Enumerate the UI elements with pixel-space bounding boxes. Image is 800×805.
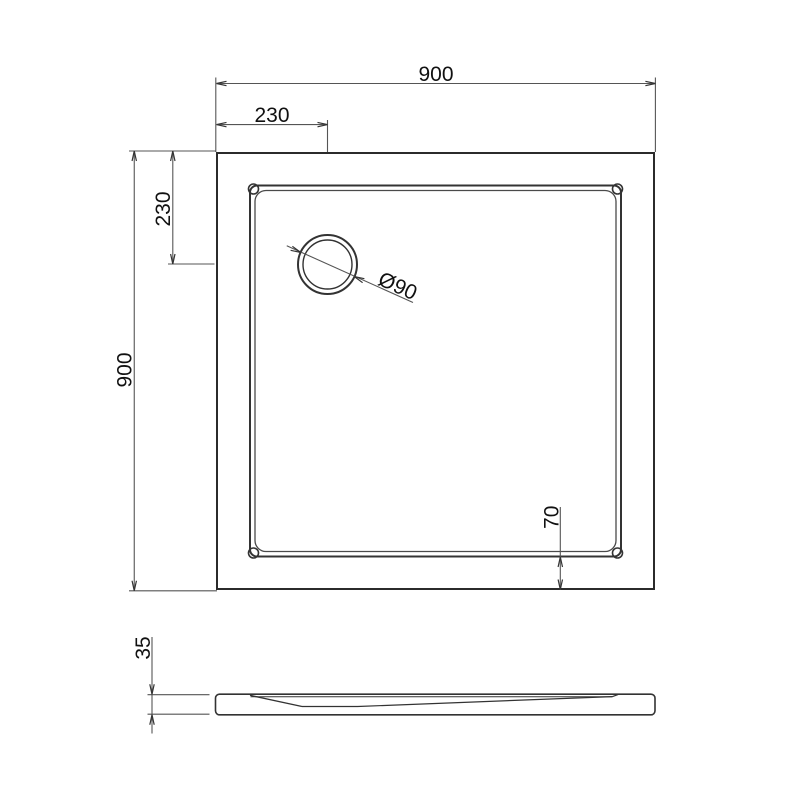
svg-text:230: 230	[152, 191, 175, 226]
svg-text:70: 70	[541, 506, 564, 529]
svg-text:230: 230	[254, 104, 289, 127]
svg-text:35: 35	[132, 636, 155, 659]
svg-text:900: 900	[418, 63, 453, 86]
svg-text:Ø90: Ø90	[375, 268, 421, 305]
svg-text:900: 900	[114, 352, 137, 387]
